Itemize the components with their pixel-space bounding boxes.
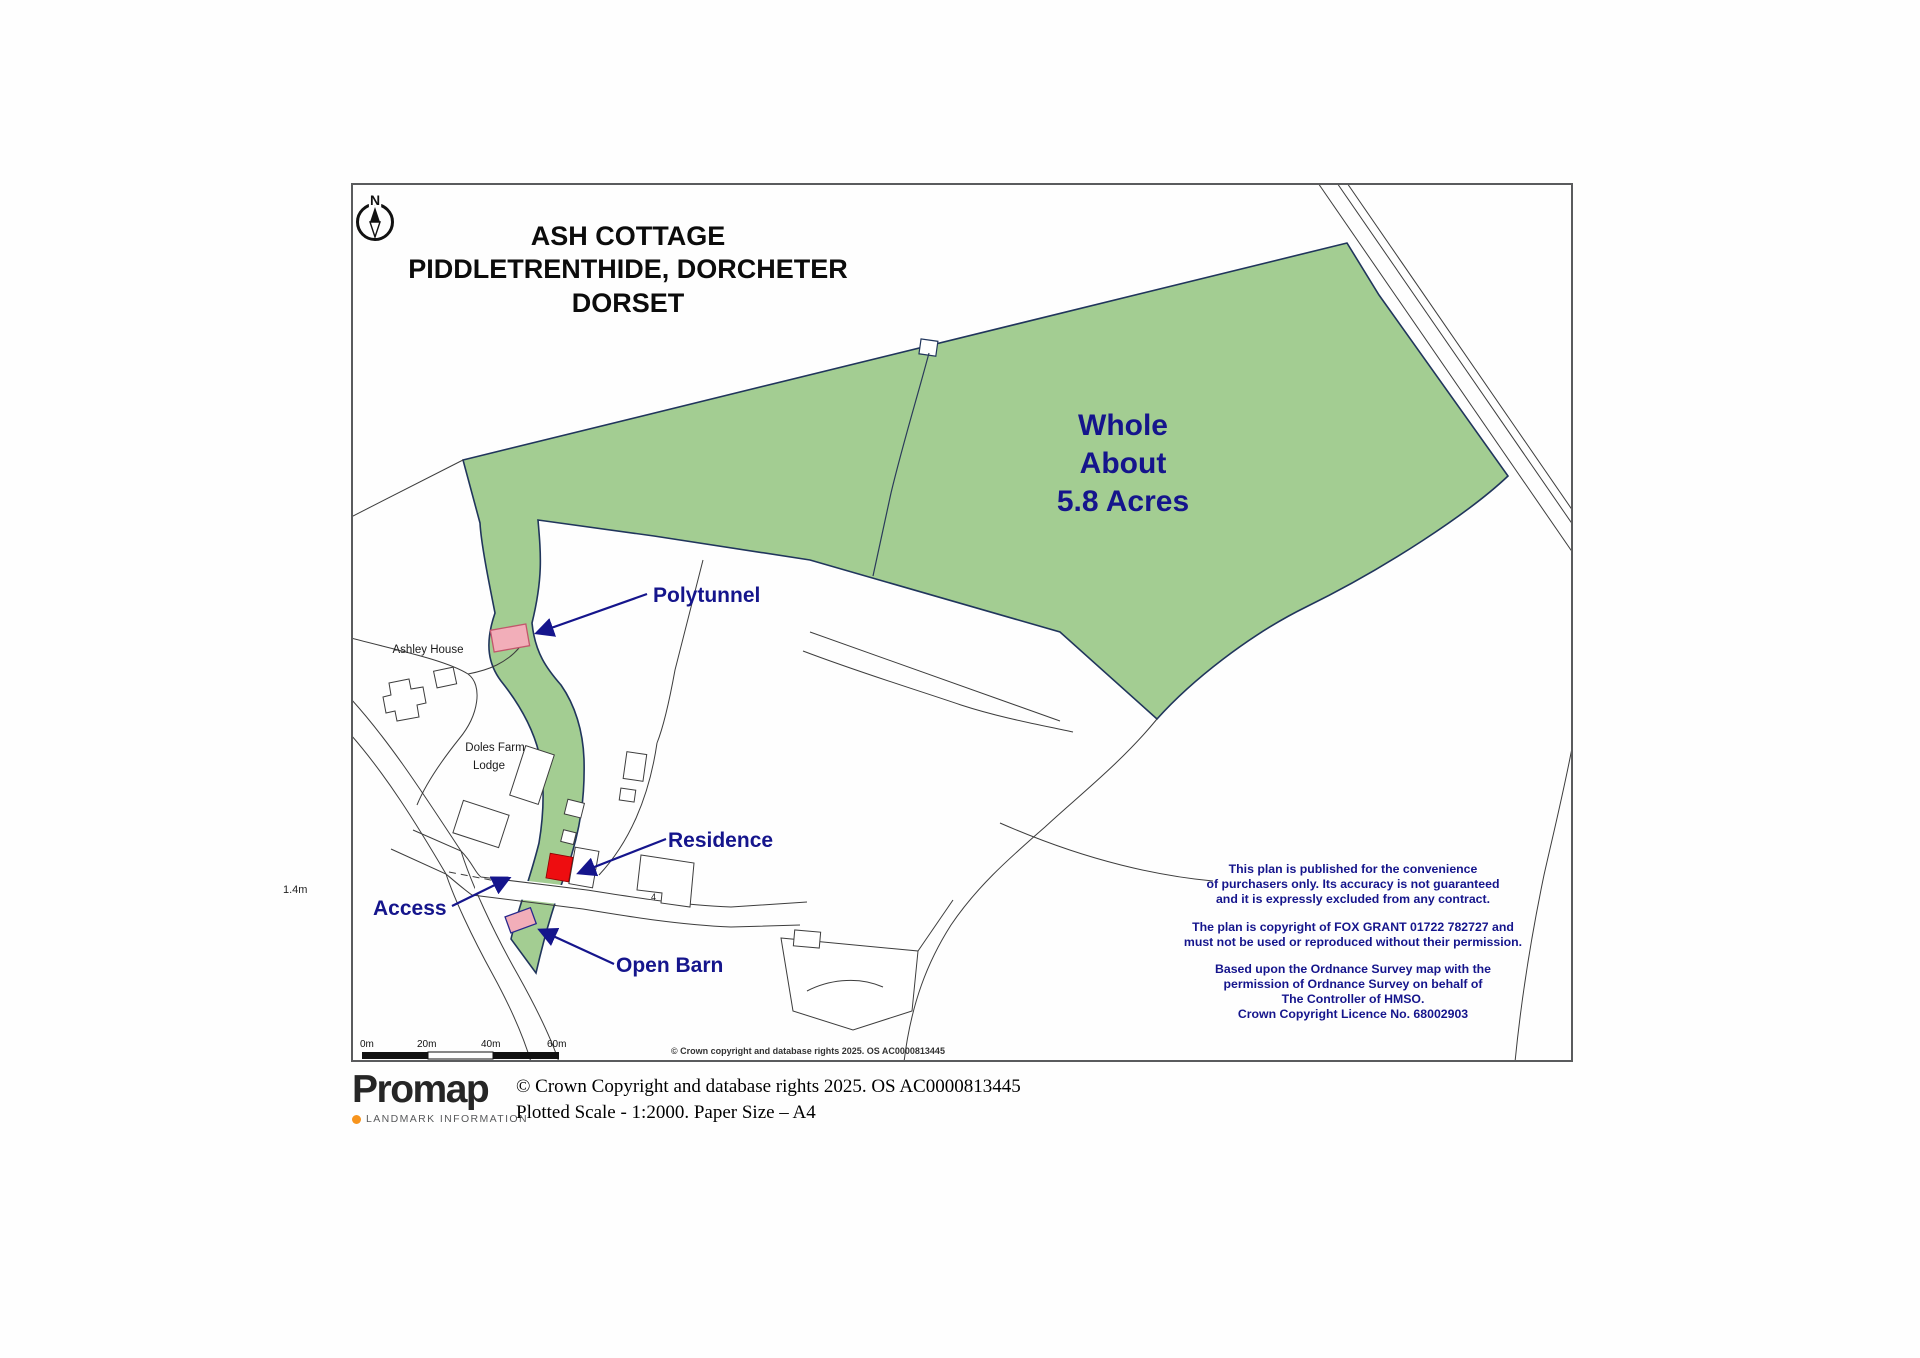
compass-n-label: N	[370, 192, 380, 208]
building-shed	[619, 788, 636, 802]
residence-label: Residence	[668, 829, 773, 852]
disclaimer-line: The plan is copyright of FOX GRANT 01722…	[1192, 920, 1514, 934]
doles-farm-label1: Doles Farm	[465, 742, 524, 754]
map-title-line1: ASH COTTAGE	[531, 221, 726, 251]
disclaimer-block: This plan is published for the convenien…	[1184, 862, 1522, 1021]
open-barn-arrow	[540, 930, 614, 964]
scale-tick-label: 60m	[547, 1039, 566, 1050]
landmark-information-label: LANDMARK INFORMATION	[366, 1113, 528, 1125]
boundary-path	[904, 719, 1157, 1062]
building-ashley-house	[383, 679, 426, 721]
disclaimer-line: must not be used or reproduced without t…	[1184, 935, 1522, 949]
promap-wordmark: Promap	[352, 1070, 528, 1110]
boundary-path	[351, 460, 463, 517]
footer-copyright-line: © Crown Copyright and database rights 20…	[516, 1074, 1021, 1100]
disclaimer-line: Based upon the Ordnance Survey map with …	[1215, 962, 1491, 976]
boundary-path	[1515, 743, 1573, 1062]
footer-text: © Crown Copyright and database rights 20…	[516, 1074, 1021, 1126]
acreage-line3: 5.8 Acres	[1057, 485, 1189, 518]
boundary-path	[918, 900, 953, 951]
disclaimer-line: of purchasers only. Its accuracy is not …	[1207, 877, 1500, 891]
scale-tick-label: 40m	[481, 1039, 500, 1050]
promap-logo: Promap LANDMARK INFORMATION	[352, 1070, 528, 1125]
map-title-line2: PIDDLETRENTHIDE, DORCHETER	[408, 254, 848, 284]
building-parcel-annex	[793, 930, 820, 948]
disclaimer-line: The Controller of HMSO.	[1282, 992, 1425, 1006]
boundary-path	[803, 651, 1073, 732]
spot-height-label: 1.4m	[283, 884, 307, 896]
polytunnel-arrow	[537, 594, 647, 633]
building-doles-farm-2	[453, 800, 509, 847]
open-barn-label: Open Barn	[616, 954, 723, 977]
footer-scale-line: Plotted Scale - 1:2000. Paper Size – A4	[516, 1100, 1021, 1126]
scale-tick-label: 20m	[417, 1039, 436, 1050]
building-ashley-annex	[434, 667, 457, 688]
site-plan-svg: ASH COTTAGE PIDDLETRENTHIDE, DORCHETER D…	[351, 183, 1573, 1062]
page: { "map": { "title": ["ASH COTTAGE", "PID…	[0, 0, 1920, 1358]
boundary-path	[810, 632, 1060, 721]
disclaimer-line: This plan is published for the convenien…	[1229, 862, 1478, 876]
map-os-copyright: © Crown copyright and database rights 20…	[671, 1046, 945, 1056]
acreage-line2: About	[1080, 447, 1167, 480]
scale-bar-segment	[428, 1052, 493, 1059]
building-bottom-parcel	[781, 938, 918, 1030]
doles-farm-label2: Lodge	[473, 760, 505, 772]
landmark-dot-icon	[352, 1115, 361, 1124]
disclaimer-line: and it is expressly excluded from any co…	[1216, 892, 1490, 906]
map-title-line3: DORSET	[572, 288, 685, 318]
disclaimer-line: Crown Copyright Licence No. 68002903	[1238, 1007, 1468, 1021]
polytunnel-label: Polytunnel	[653, 584, 760, 607]
north-compass: N	[358, 192, 393, 240]
compass-needle-north	[370, 207, 380, 222]
boundary-path	[1000, 823, 1213, 881]
access-label: Access	[373, 897, 447, 920]
ashley-house-label: Ashley House	[393, 644, 464, 656]
building-shed	[623, 752, 647, 782]
plot-number-label: 4	[651, 892, 656, 902]
scale-bar-segment	[362, 1052, 428, 1059]
site-plan-map: ASH COTTAGE PIDDLETRENTHIDE, DORCHETER D…	[351, 183, 1573, 1062]
compass-needle-south	[370, 222, 380, 237]
residence-marker	[546, 853, 573, 882]
scale-tick-label: 0m	[360, 1039, 374, 1050]
disclaimer-line: permission of Ordnance Survey on behalf …	[1224, 977, 1484, 991]
building-shed	[561, 830, 577, 845]
acreage-line1: Whole	[1078, 409, 1168, 442]
scale-bar: 0m 20m 40m 60m	[360, 1039, 566, 1059]
scale-bar-segment	[493, 1052, 559, 1059]
